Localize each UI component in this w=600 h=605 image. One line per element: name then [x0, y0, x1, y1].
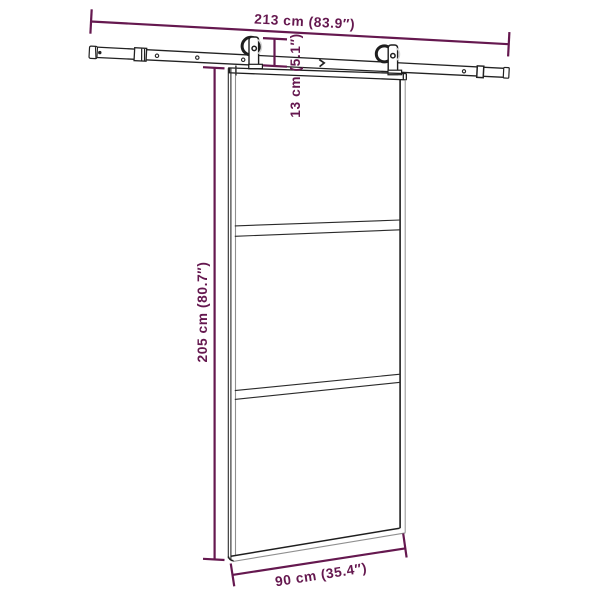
- svg-text:13 cm (5.1″): 13 cm (5.1″): [288, 33, 303, 118]
- svg-text:205 cm (80.7″): 205 cm (80.7″): [195, 262, 210, 363]
